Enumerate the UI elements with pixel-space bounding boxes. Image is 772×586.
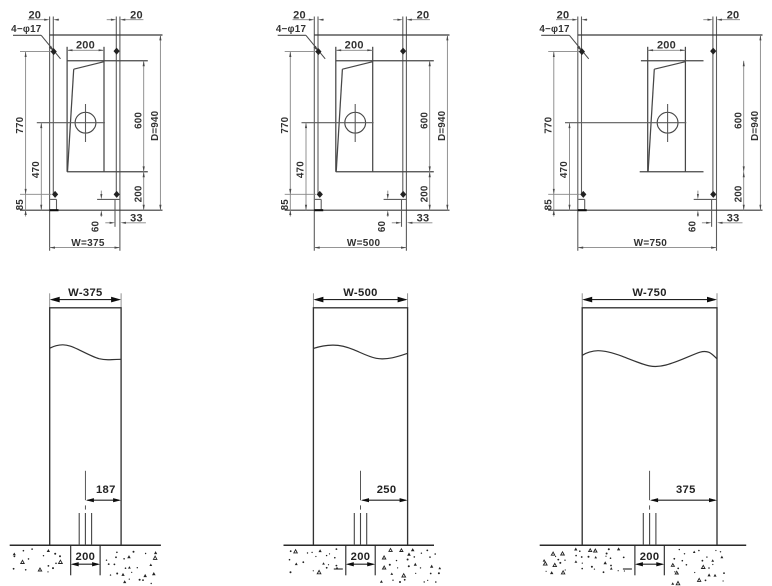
svg-text:470: 470 [559,161,570,178]
svg-text:375: 375 [676,484,696,496]
svg-text:187: 187 [96,484,116,496]
svg-text:33: 33 [417,212,430,224]
svg-text:85: 85 [280,199,291,211]
svg-text:20: 20 [557,10,570,22]
svg-text:20: 20 [130,10,143,22]
svg-text:D=940: D=940 [437,110,448,140]
svg-text:200: 200 [657,40,676,52]
svg-text:60: 60 [91,221,102,233]
svg-text:D=940: D=940 [150,110,161,140]
svg-text:600: 600 [420,112,431,129]
svg-text:600: 600 [134,112,145,129]
svg-text:200: 200 [734,185,745,202]
svg-text:85: 85 [543,199,554,211]
svg-text:200: 200 [76,40,95,52]
svg-text:200: 200 [640,551,660,563]
svg-text:33: 33 [130,212,143,224]
svg-text:200: 200 [420,185,431,202]
svg-text:770: 770 [15,116,26,133]
svg-text:20: 20 [28,10,41,22]
svg-text:200: 200 [345,40,364,52]
svg-text:770: 770 [280,116,291,133]
svg-text:W=750: W=750 [634,238,668,249]
svg-text:4−φ17: 4−φ17 [11,24,42,35]
svg-text:250: 250 [377,484,397,496]
svg-text:20: 20 [727,10,740,22]
svg-text:770: 770 [543,116,554,133]
svg-text:20: 20 [417,10,430,22]
svg-text:200: 200 [76,551,96,563]
svg-text:470: 470 [31,161,42,178]
svg-text:W-500: W-500 [343,287,377,299]
svg-text:60: 60 [377,221,388,233]
svg-text:200: 200 [134,185,145,202]
svg-text:4−φ17: 4−φ17 [539,24,570,35]
svg-text:470: 470 [296,161,307,178]
svg-text:200: 200 [351,551,371,563]
svg-text:85: 85 [15,199,26,211]
svg-text:W-375: W-375 [68,287,102,299]
svg-text:20: 20 [293,10,306,22]
svg-text:W=375: W=375 [71,238,105,249]
svg-text:60: 60 [687,221,698,233]
svg-text:W=500: W=500 [347,238,381,249]
svg-text:600: 600 [734,112,745,129]
svg-text:4−φ17: 4−φ17 [276,24,307,35]
svg-text:33: 33 [727,212,740,224]
svg-text:D=940: D=940 [750,110,761,140]
svg-text:W-750: W-750 [632,287,666,299]
